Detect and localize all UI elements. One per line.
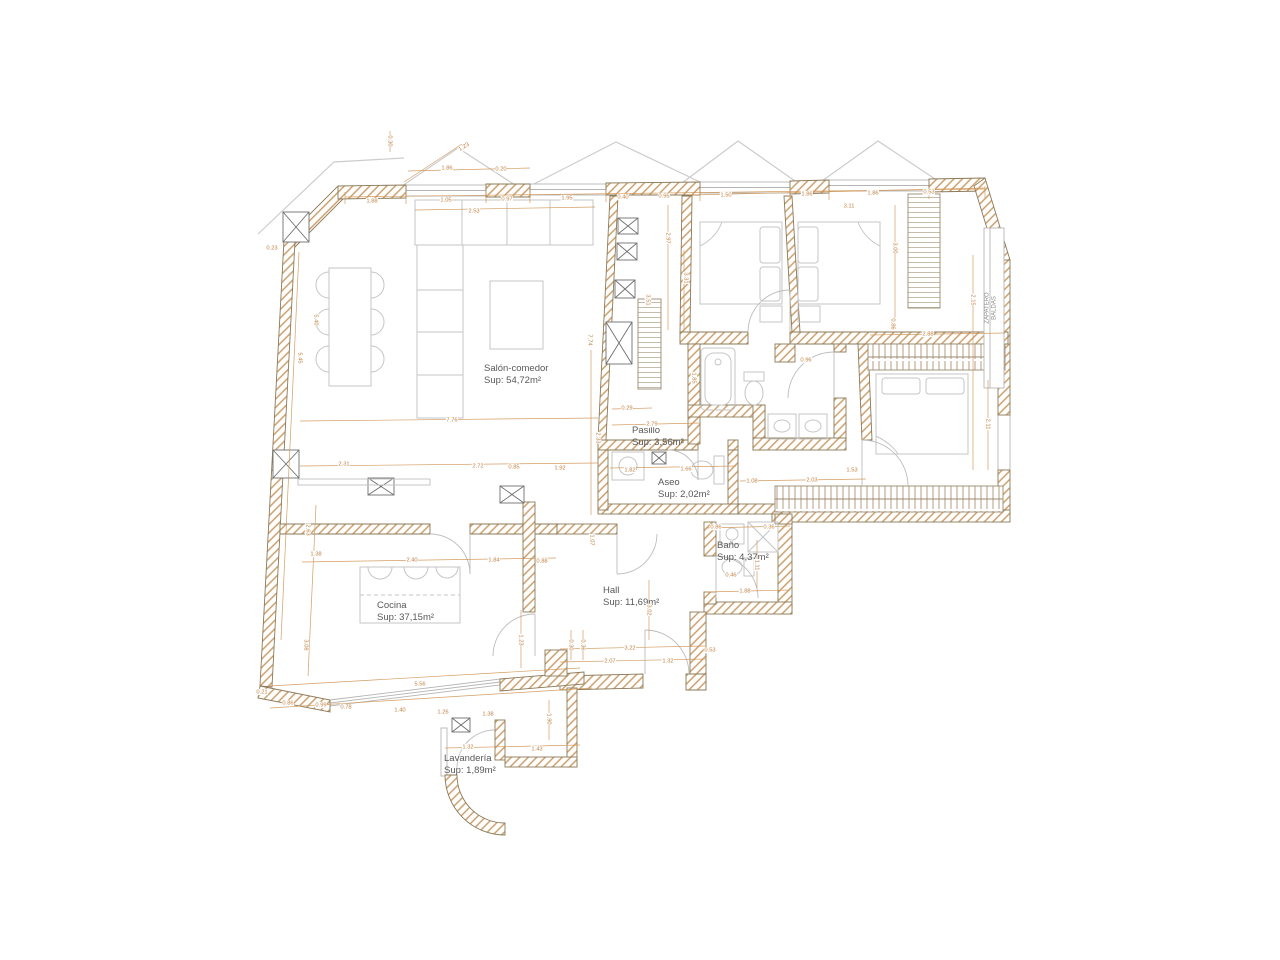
shelving-unit	[984, 228, 1004, 388]
floor-plan-drawing	[0, 0, 1280, 960]
bed-2	[798, 222, 880, 322]
coffee-table	[490, 281, 543, 349]
kitchen-island	[360, 567, 460, 623]
bed-3	[876, 374, 968, 454]
bed-1	[700, 222, 782, 322]
storage-units	[415, 200, 593, 418]
bano-fixtures	[720, 522, 778, 576]
kitchen-counter	[298, 479, 430, 485]
double-sinks	[768, 414, 827, 439]
floor-plan-page: Salón-comedorSup: 54,72m²PasilloSup: 3,5…	[0, 0, 1280, 960]
bathtub	[701, 348, 735, 410]
toilet-bath	[744, 372, 764, 405]
dining-table	[316, 268, 384, 386]
